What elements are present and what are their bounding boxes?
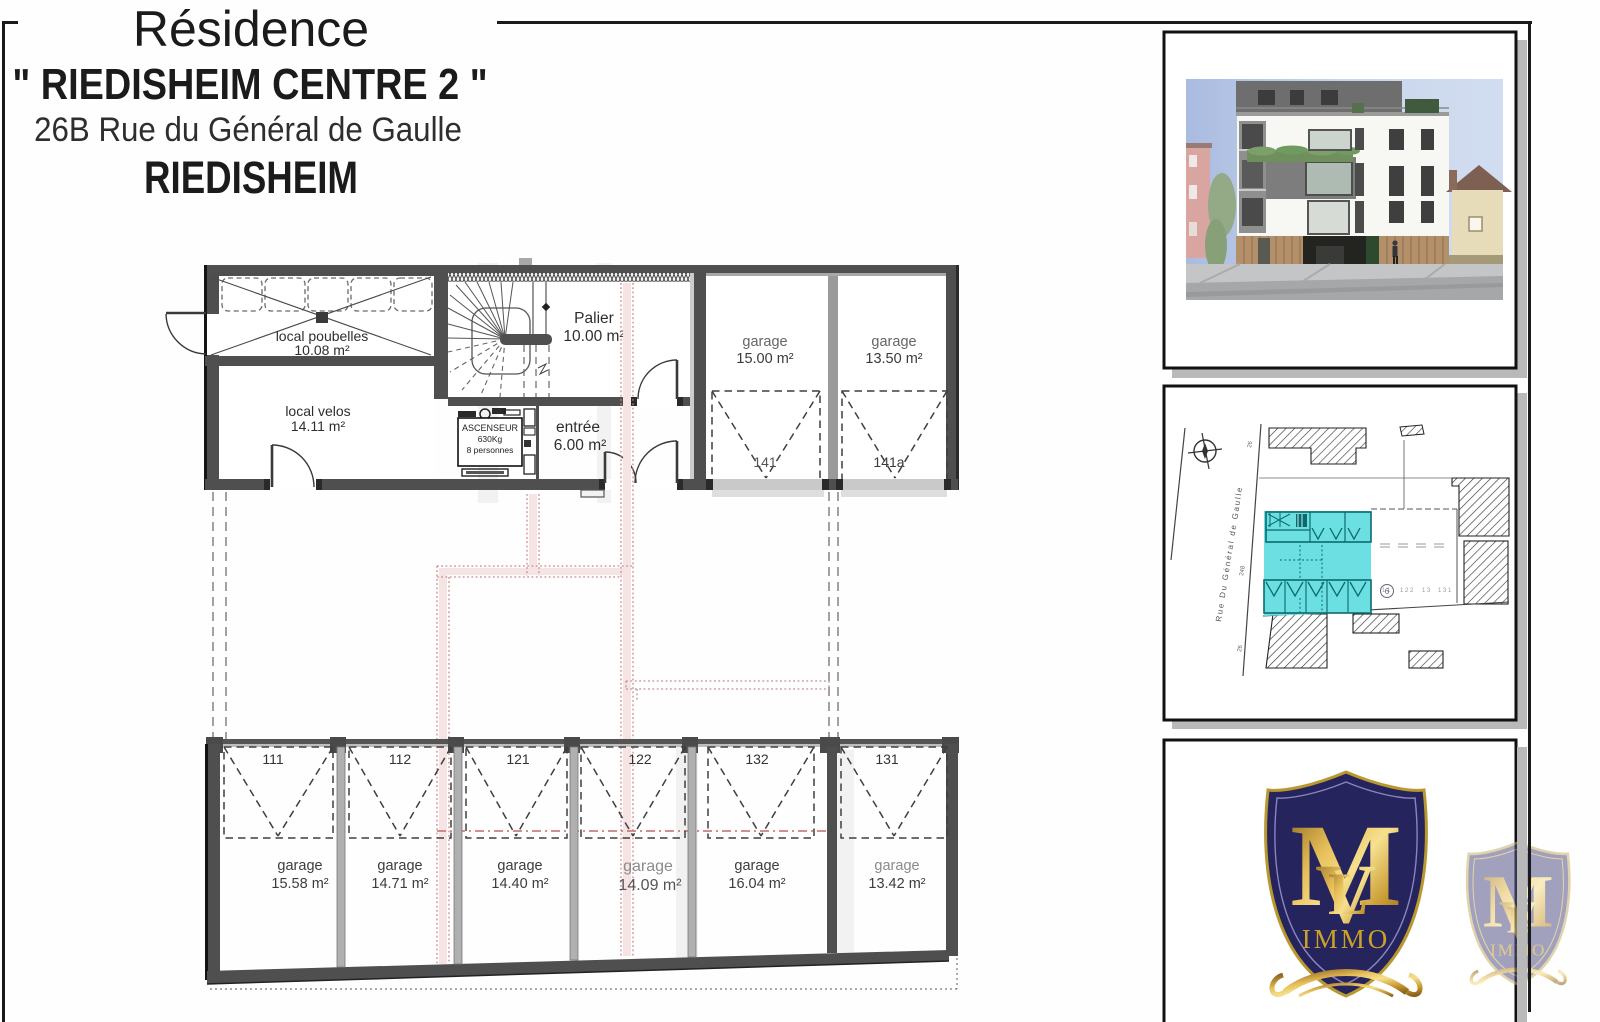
svg-text:14.09 m²: 14.09 m² <box>618 877 682 894</box>
svg-text:L: L <box>1328 861 1368 927</box>
svg-text:garage: garage <box>623 858 673 875</box>
svg-text:16.04 m²: 16.04 m² <box>728 876 785 892</box>
svg-text:15.00 m²: 15.00 m² <box>736 351 793 367</box>
svg-text:6: 6 <box>1385 587 1390 596</box>
svg-text:10.08 m²: 10.08 m² <box>294 342 350 358</box>
svg-text:10.00 m²: 10.00 m² <box>563 328 624 345</box>
svg-text:14.40 m²: 14.40 m² <box>491 876 548 892</box>
svg-text:8 personnes: 8 personnes <box>467 445 514 455</box>
svg-text:1 2 2: 1 2 2 <box>1400 588 1414 594</box>
svg-text:ASCENSEUR: ASCENSEUR <box>462 423 519 433</box>
svg-text:13.42 m²: 13.42 m² <box>868 876 925 892</box>
svg-text:112: 112 <box>389 751 412 767</box>
svg-text:garage: garage <box>874 858 919 874</box>
svg-text:local velos: local velos <box>285 403 350 419</box>
svg-text:630Kg: 630Kg <box>478 434 503 444</box>
svg-text:111: 111 <box>262 751 283 767</box>
svg-text:garage: garage <box>377 858 422 874</box>
svg-text:121: 121 <box>506 751 530 767</box>
svg-text:6.00 m²: 6.00 m² <box>554 437 607 454</box>
svg-text:Palier: Palier <box>574 310 614 327</box>
svg-text:15.58 m²: 15.58 m² <box>271 876 328 892</box>
svg-text:141a: 141a <box>873 454 904 470</box>
svg-text:garage: garage <box>734 858 779 874</box>
svg-text:14.71 m²: 14.71 m² <box>371 876 428 892</box>
svg-text:garage: garage <box>497 858 542 874</box>
svg-text:13.50 m²: 13.50 m² <box>865 351 922 367</box>
svg-text:garage: garage <box>277 858 322 874</box>
svg-text:131: 131 <box>875 751 899 767</box>
svg-text:entrée: entrée <box>556 419 600 436</box>
svg-text:garage: garage <box>742 334 787 350</box>
svg-text:1 3 1: 1 3 1 <box>1438 588 1452 594</box>
svg-text:141: 141 <box>753 454 777 470</box>
svg-text:1 3: 1 3 <box>1422 588 1431 594</box>
svg-text:14.11 m²: 14.11 m² <box>291 418 346 434</box>
svg-text:132: 132 <box>745 751 769 767</box>
svg-text:IMMO: IMMO <box>1302 924 1391 954</box>
svg-text:122: 122 <box>628 751 652 767</box>
svg-text:garage: garage <box>871 334 916 350</box>
